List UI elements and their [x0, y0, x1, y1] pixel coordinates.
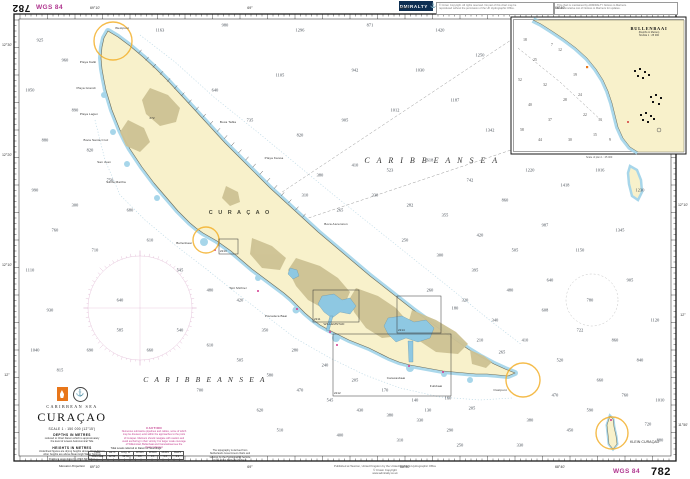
sea-label-northeast: C A R I B B E A N S E A [364, 156, 499, 165]
sea-label-southwest: C A R I B B E A N S E A [143, 375, 266, 384]
admiralty-wordmark: ADMIRALTY [396, 4, 428, 9]
inset-scale: SCALE 1 : 25 000 [613, 34, 685, 37]
chart-title: CURAÇAO [22, 410, 122, 425]
projection-note: Mercator Projection [22, 464, 122, 468]
title-region: CARIBBEAN SEA [22, 404, 122, 409]
source-line: of the Royal Netherlands Navy. [192, 459, 268, 462]
tidal-levels-table: Tidal Levels referred to Datum of Soundi… [88, 447, 184, 460]
tidal-cell: 12°06′ [106, 455, 118, 459]
compass-circle-faint [566, 274, 618, 326]
ukho-flame-logo [57, 387, 68, 401]
source-note: The topography is derived from Netherlan… [192, 449, 268, 462]
tidal-cell: 0.4 [146, 455, 159, 459]
tidal-cell: 0.3 [159, 455, 171, 459]
update-line: See Cumulative List of Notices to Marine… [557, 7, 675, 10]
update-note-box: This chart is maintained by ADMIRALTY No… [554, 2, 678, 15]
publication-note: Published at Taunton, United Kingdom by … [280, 465, 490, 476]
klein-curacao-label: KLEIN CURAÇAO [630, 440, 660, 444]
tidal-cell: 0.1 [171, 455, 183, 459]
compass-rose [83, 250, 197, 366]
inset-plan-bullenbaai [511, 17, 686, 154]
copyright-line: reproduced without the permission of the… [439, 7, 551, 10]
island-klein-curacao [607, 416, 617, 449]
datum-label-bottom: WGS 84 [613, 468, 640, 475]
nautical-chart-page: C A R I B B E A N S E A C A R I B B E A … [0, 0, 690, 479]
copyright-note-box: © Crown Copyright. All rights reserved. … [436, 2, 554, 15]
island-name-label: C U R A Ç A O [209, 210, 271, 216]
admiralty-badge: ADMIRALTY ⚓ [399, 1, 433, 11]
chart-number-top: 782 [12, 2, 30, 13]
island-curacao [101, 31, 515, 383]
publisher-logos [22, 386, 122, 402]
tidal-cell: 0.5 [133, 455, 146, 459]
datum-label-top: WGS 84 [36, 4, 63, 11]
tidal-cell: 68°56′ [118, 455, 133, 459]
hydrographic-crest-icon [73, 387, 88, 402]
caution-note: CAUTION Numerous submarine pipelines and… [106, 426, 202, 450]
offshore-bank [628, 166, 642, 200]
chart-number-bottom: 782 [651, 466, 671, 478]
inset-title-block: BULLENBAAI (Depths in Metres) SCALE 1 : … [613, 26, 685, 38]
inset-caption: Scale of plan 1 : 25 000 [586, 156, 612, 159]
tidal-cell: Willemstad [89, 455, 107, 459]
publication-line: www.admiralty.co.uk [280, 472, 490, 476]
